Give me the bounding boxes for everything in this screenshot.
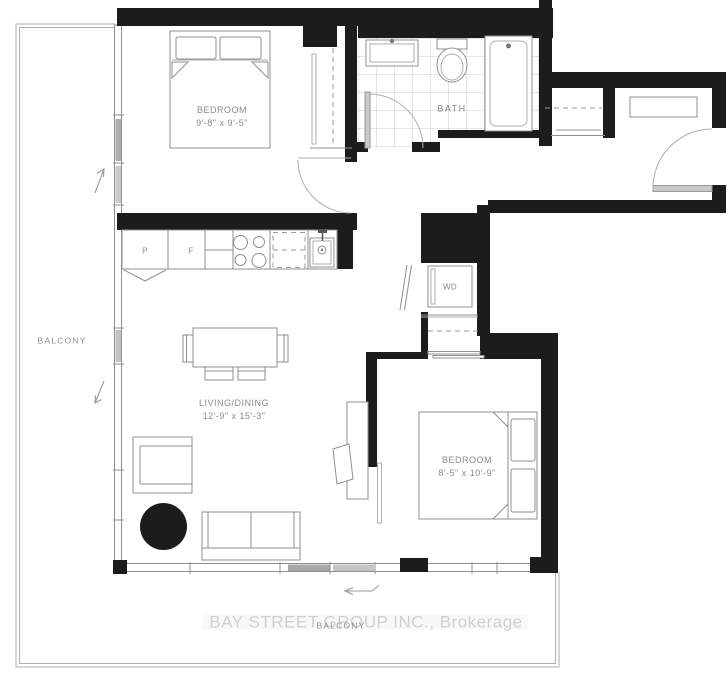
tv-console <box>333 402 368 499</box>
bedroom1-name: BEDROOM <box>196 104 248 117</box>
bedroom2-dresser <box>378 463 382 523</box>
pantry-door-swing <box>124 270 166 281</box>
bedroom1-dims: 9'-8" x 9'-5" <box>196 117 248 130</box>
entry-door <box>653 129 712 192</box>
bedroom2-label: BEDROOM 8'-5" x 10'-9" <box>438 454 495 480</box>
window-wall-left <box>113 25 124 563</box>
toilet <box>437 39 467 82</box>
sliding-door <box>428 352 480 355</box>
bedroom1-label: BEDROOM 9'-8" x 9'-5" <box>196 104 248 130</box>
dining-table <box>183 328 288 380</box>
washer-dryer-label: WD <box>443 281 457 294</box>
balcony-left-label: BALCONY <box>37 335 86 348</box>
living-dining-label: LIVING/DINING 12'-9" x 15'-3" <box>199 397 269 423</box>
bedroom2-closet <box>421 315 484 358</box>
bedroom1-door <box>298 158 351 213</box>
bedroom2-name: BEDROOM <box>438 454 495 467</box>
pantry-label: P <box>142 245 148 258</box>
washer-dryer <box>400 265 472 310</box>
brokerage-watermark: BAY STREET GROUP INC., Brokerage <box>203 615 528 630</box>
arrow-balcony-door-upper <box>95 169 104 193</box>
entry-closet <box>545 108 605 136</box>
living-name: LIVING/DINING <box>199 397 269 410</box>
bath-sink <box>366 39 418 66</box>
arrow-balcony-door-bottom <box>345 586 379 595</box>
sofa <box>202 512 300 560</box>
floor-plan: BAY STREET GROUP INC., Brokerage BEDROOM… <box>0 0 728 681</box>
living-dims: 12'-9" x 15'-3" <box>199 410 269 423</box>
arrow-balcony-door-lower <box>95 381 104 403</box>
bathtub <box>485 36 532 131</box>
floor-plan-linework <box>0 0 728 681</box>
window-wall-bottom <box>115 562 558 574</box>
coffee-table <box>140 503 187 550</box>
armchair <box>133 437 192 493</box>
tv <box>333 444 353 484</box>
bedroom2-dims: 8'-5" x 10'-9" <box>438 467 495 480</box>
entry-shelf <box>630 97 697 117</box>
fridge-label: F <box>188 245 193 258</box>
bed-bedroom1 <box>170 31 270 148</box>
bath-label: BATH <box>437 103 466 116</box>
balcony-bottom-label: BALCONY <box>316 620 365 633</box>
